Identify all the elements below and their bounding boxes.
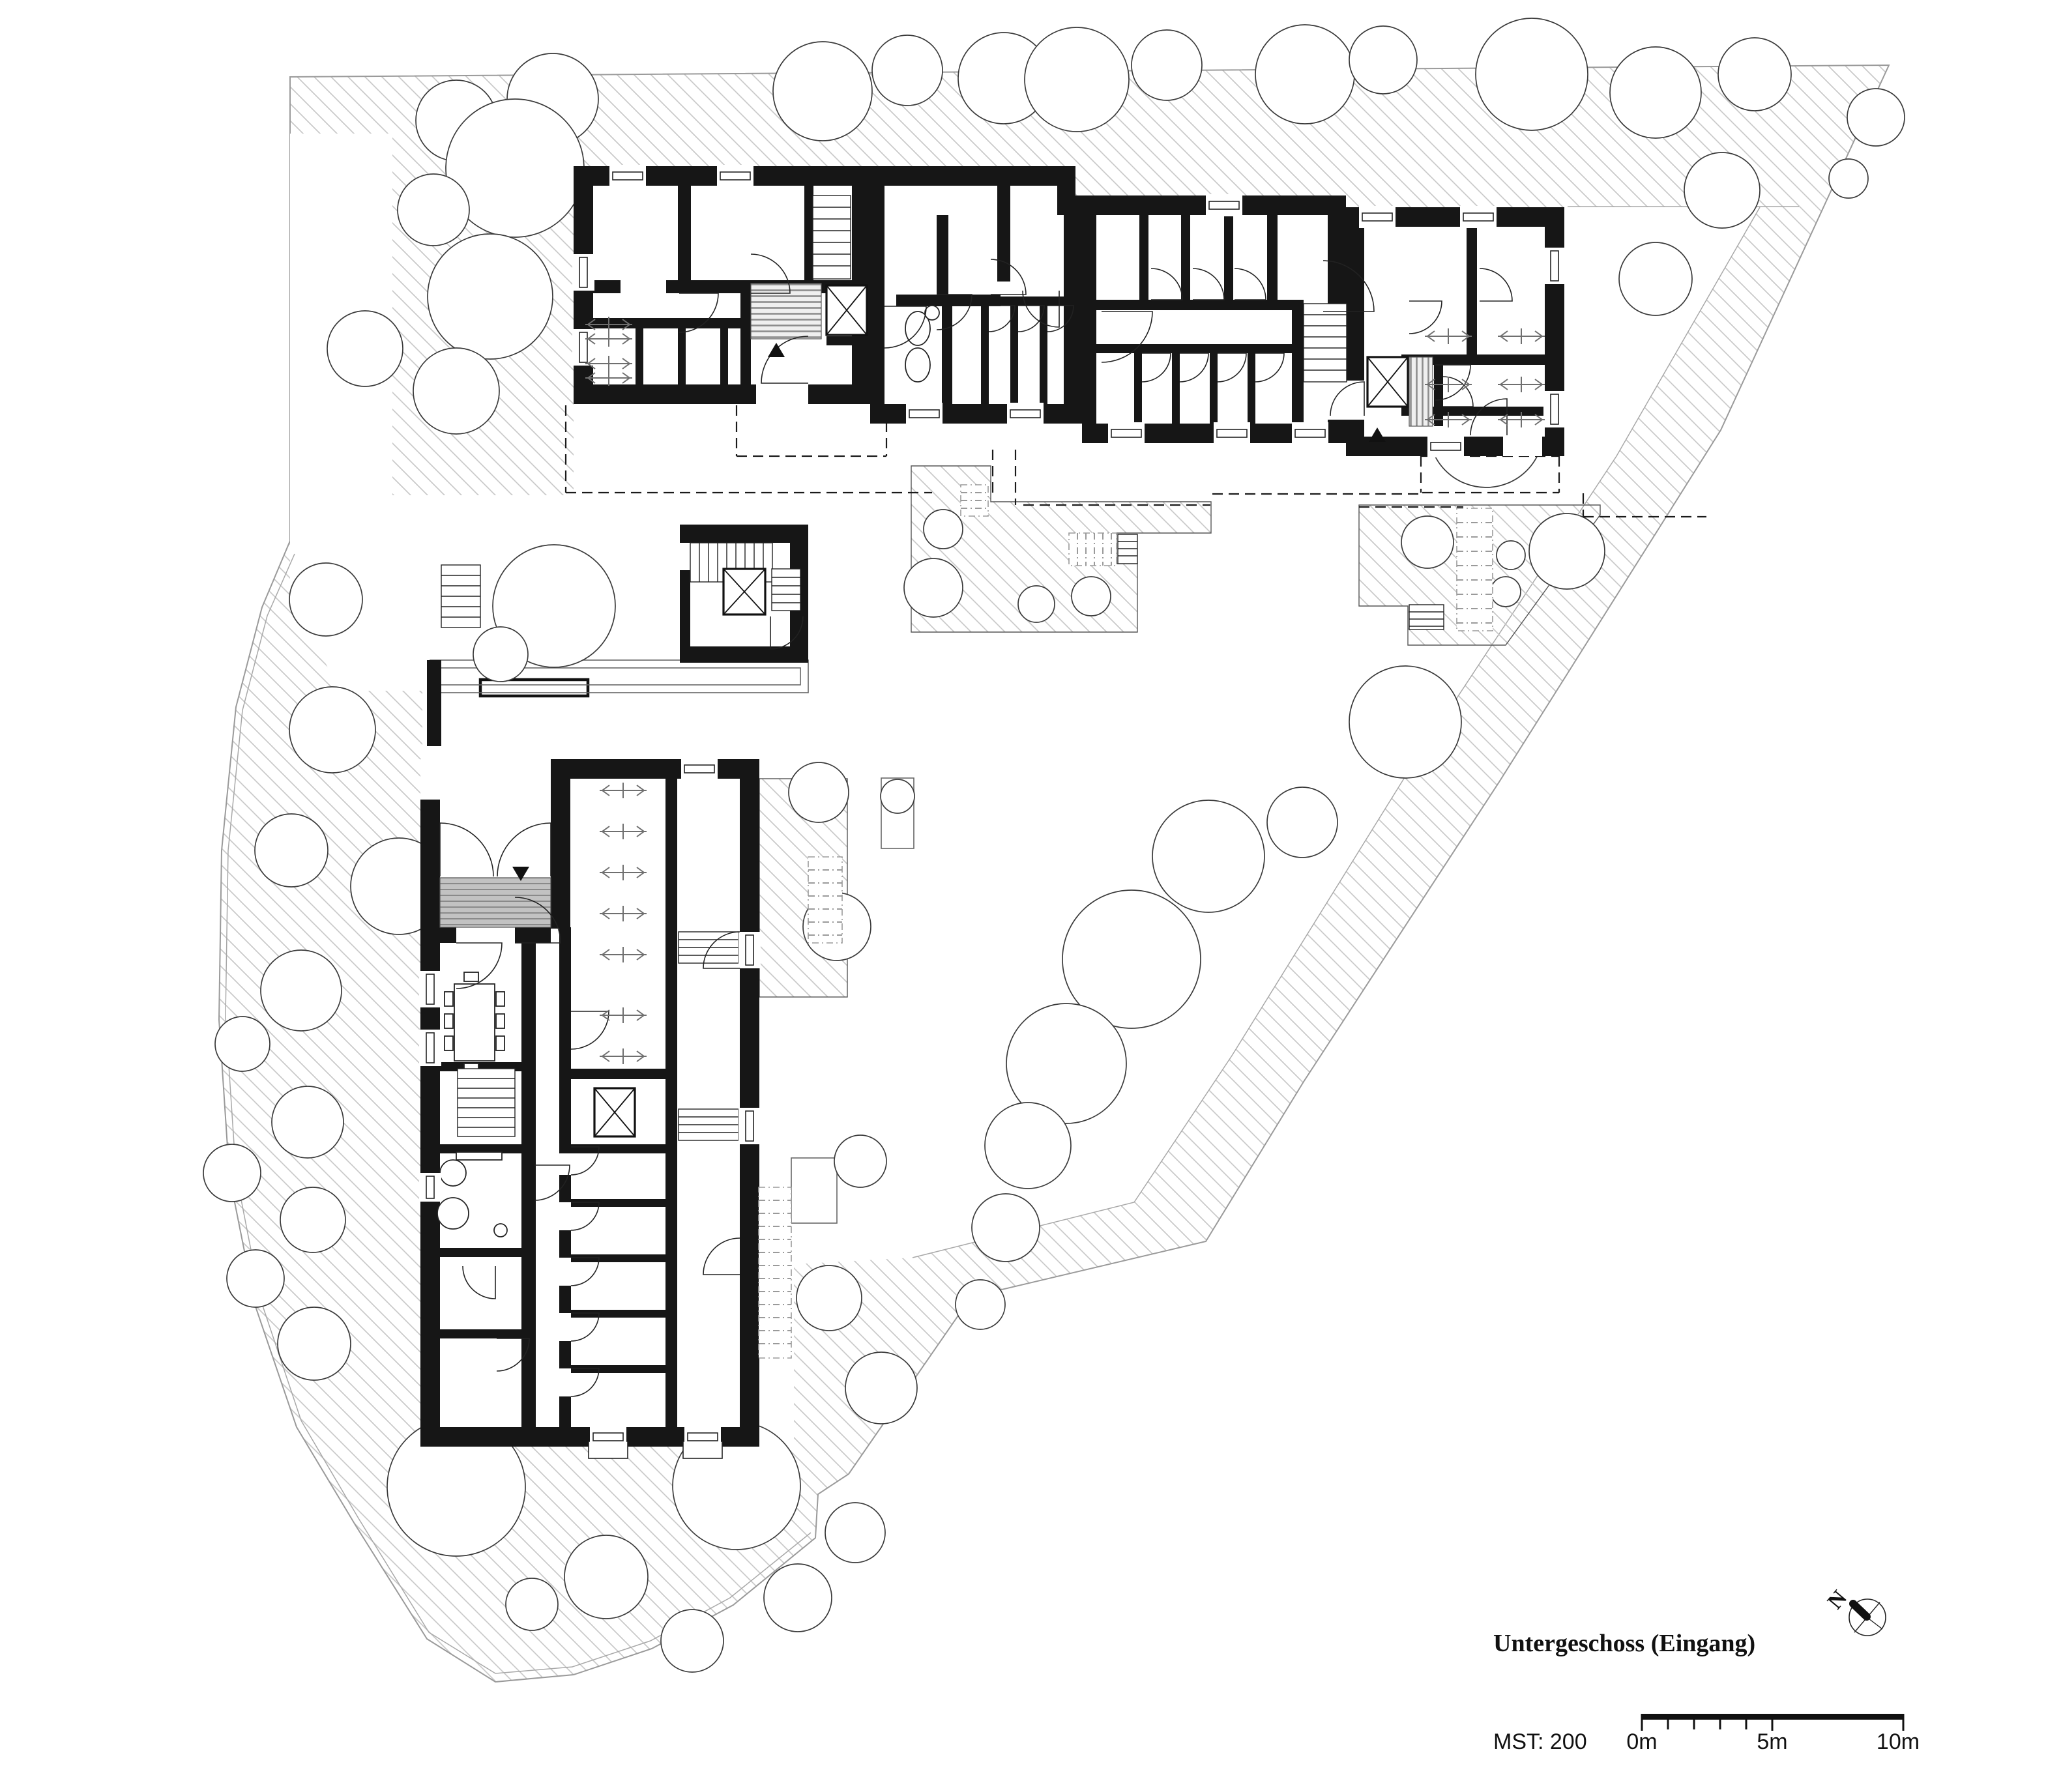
stair-flight	[441, 565, 480, 628]
tree	[881, 779, 914, 813]
tree	[289, 563, 362, 636]
scale-tick-10m: 10m	[1877, 1729, 1920, 1754]
stair-flight	[813, 195, 851, 279]
window	[909, 410, 939, 418]
tree	[1497, 541, 1525, 570]
tree	[845, 1352, 917, 1424]
tree	[1684, 152, 1760, 228]
stair-flight	[1409, 605, 1444, 629]
garden-wall	[427, 660, 441, 746]
window	[593, 1433, 623, 1441]
tree	[1025, 27, 1129, 132]
tree	[1619, 242, 1692, 315]
tree	[764, 1564, 832, 1632]
elevator	[724, 569, 765, 614]
tree	[1152, 800, 1264, 912]
tree	[1401, 516, 1454, 568]
wc-fixture	[905, 348, 930, 382]
tree	[1132, 30, 1202, 100]
stair-flight	[458, 1069, 515, 1136]
tree	[661, 1610, 724, 1672]
window	[720, 172, 750, 180]
window	[1551, 394, 1558, 424]
tree	[789, 762, 849, 822]
tree	[956, 1280, 1005, 1329]
tree	[413, 348, 499, 434]
stair-flight	[679, 1109, 738, 1140]
elevator	[594, 1088, 635, 1136]
window	[1010, 410, 1040, 418]
window	[688, 1433, 718, 1441]
tree	[280, 1187, 345, 1252]
tree	[972, 1194, 1040, 1262]
tree	[398, 174, 469, 246]
garden-stair	[961, 485, 988, 516]
north-arrow-icon: N	[1823, 1586, 1886, 1636]
window	[426, 974, 434, 1004]
stair-ramp	[751, 283, 821, 339]
scale-label: MST: 200	[1493, 1729, 1587, 1754]
stair-flight	[1118, 534, 1137, 564]
stair-flight	[679, 932, 738, 963]
window	[1362, 213, 1392, 221]
stair-flight	[1304, 304, 1347, 382]
window	[1295, 429, 1325, 437]
tree	[1267, 787, 1337, 858]
window	[426, 1033, 434, 1063]
tree	[473, 627, 528, 682]
floor-plan: Untergeschoss (Eingang) MST: 200 0m 5m 1…	[0, 0, 2061, 1792]
scale-tick-0m: 0m	[1626, 1729, 1657, 1754]
tree	[289, 687, 375, 773]
sink-fixture	[925, 306, 939, 320]
tree	[1491, 577, 1521, 607]
tree	[255, 814, 328, 887]
tree	[1018, 586, 1055, 622]
tree	[773, 42, 872, 141]
stair-flight	[772, 569, 800, 611]
garden-stair	[1457, 508, 1493, 631]
tree	[278, 1307, 351, 1380]
window	[1551, 251, 1558, 281]
tree	[904, 558, 963, 617]
tree	[1847, 89, 1905, 146]
window	[426, 1176, 434, 1198]
tree	[327, 311, 403, 386]
window	[684, 765, 714, 773]
tree	[1610, 47, 1701, 138]
garden-stair	[808, 857, 842, 943]
window	[1463, 213, 1493, 221]
tree	[272, 1086, 343, 1158]
tree	[506, 1578, 558, 1630]
window	[1111, 429, 1141, 437]
planter-wall	[480, 680, 588, 696]
tree	[203, 1144, 261, 1202]
window	[746, 1111, 753, 1141]
tree	[834, 1135, 886, 1187]
tree	[1718, 38, 1791, 111]
tree	[1255, 25, 1354, 124]
tree	[1349, 666, 1461, 778]
elevator	[826, 285, 867, 335]
tree	[1349, 26, 1417, 94]
tree	[227, 1250, 284, 1307]
tree	[1476, 18, 1588, 130]
tree	[261, 950, 342, 1031]
tree	[564, 1535, 648, 1619]
north-needle	[1853, 1604, 1867, 1617]
tree	[825, 1503, 885, 1563]
window	[1217, 429, 1247, 437]
window	[1209, 201, 1239, 209]
north-letter: N	[1823, 1586, 1852, 1614]
stair-ramp	[1409, 357, 1433, 426]
window	[613, 172, 643, 180]
window	[579, 332, 587, 362]
scale-bar: 0m 5m 10m	[1626, 1714, 1920, 1754]
annotation-block: Untergeschoss (Eingang) MST: 200 0m 5m 1…	[1493, 1586, 1920, 1754]
entry-vestibule	[440, 878, 551, 927]
tree	[872, 35, 943, 106]
tree	[924, 510, 963, 549]
tree	[1529, 513, 1605, 589]
drawing-sheet: Untergeschoss (Eingang) MST: 200 0m 5m 1…	[0, 0, 2061, 1792]
floor-title: Untergeschoss (Eingang)	[1493, 1630, 1755, 1657]
window	[746, 935, 753, 965]
window	[579, 257, 587, 287]
tree	[985, 1103, 1071, 1189]
scale-tick-5m: 5m	[1757, 1729, 1787, 1754]
tree	[797, 1265, 862, 1331]
tree	[215, 1017, 270, 1071]
elevator	[1367, 357, 1408, 407]
window	[1431, 442, 1461, 450]
garden-stair	[759, 1187, 791, 1358]
tree	[428, 234, 553, 359]
garden-stair	[1069, 533, 1117, 566]
tree	[1072, 577, 1111, 616]
tree	[1829, 159, 1868, 198]
